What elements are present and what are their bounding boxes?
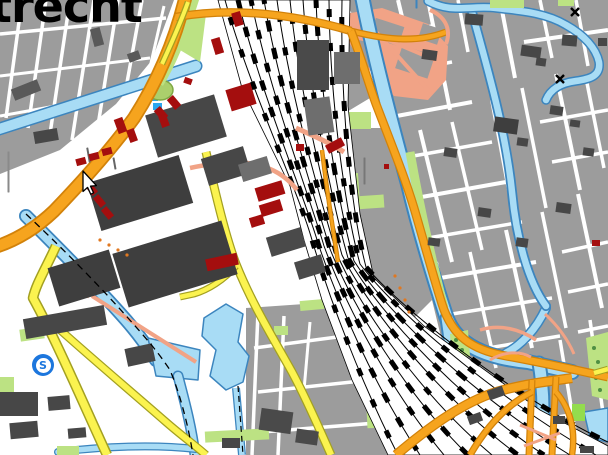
buildings-shape xyxy=(535,57,546,66)
buildings-shape xyxy=(582,147,594,156)
symbols-shape xyxy=(116,248,119,251)
parks-shape xyxy=(572,404,585,421)
map-label-city: trecht xyxy=(0,0,142,29)
buildings-shape xyxy=(334,52,360,84)
buildings-shape xyxy=(68,427,87,439)
buildings-shape xyxy=(421,49,437,61)
parks-shape xyxy=(596,360,600,364)
water-shape xyxy=(416,0,417,8)
buildings-shape xyxy=(598,38,607,46)
station-icon[interactable]: S xyxy=(32,354,54,376)
parks-shape xyxy=(592,346,596,350)
buildings-shape xyxy=(555,202,571,214)
buildings-shape xyxy=(222,438,240,448)
buildings-shape xyxy=(516,137,528,146)
buildings-shape xyxy=(304,96,335,135)
buildings-shape xyxy=(364,158,365,184)
symbols-shape xyxy=(403,298,406,301)
buildings-shape xyxy=(570,119,581,127)
symbols-shape xyxy=(393,274,396,277)
buildings-shape xyxy=(259,408,294,434)
buildings-shape xyxy=(8,152,9,192)
buildings-shape xyxy=(428,237,441,247)
buildings-shape xyxy=(443,147,457,158)
buildings-shape xyxy=(297,40,329,90)
map-canvas[interactable] xyxy=(0,0,608,455)
symbols-shape xyxy=(107,243,110,246)
buildings-shape xyxy=(384,164,389,169)
symbols-shape xyxy=(407,310,410,313)
buildings-shape xyxy=(0,392,38,416)
symbols-shape xyxy=(398,286,401,289)
buildings-shape xyxy=(580,446,594,453)
buildings-shape xyxy=(562,34,578,46)
parks-shape xyxy=(0,377,14,393)
parks-shape xyxy=(490,0,524,8)
buildings-shape xyxy=(549,105,563,116)
buildings-shape xyxy=(9,421,38,439)
buildings-shape xyxy=(515,237,528,248)
buildings-shape xyxy=(296,144,304,151)
buildings-shape xyxy=(47,395,70,411)
parks-shape xyxy=(558,0,574,6)
station-icon-letter: S xyxy=(39,360,47,371)
parks-shape xyxy=(598,388,602,392)
symbols-shape xyxy=(98,238,101,241)
buildings-shape xyxy=(465,13,484,26)
symbols-shape xyxy=(125,253,128,256)
buildings-shape xyxy=(553,416,565,424)
parks-shape xyxy=(300,299,325,311)
buildings-shape xyxy=(592,240,600,246)
buildings-shape xyxy=(477,207,491,218)
station-icon-ring: S xyxy=(36,358,51,373)
parks-shape xyxy=(57,446,79,455)
parks-shape xyxy=(274,326,288,335)
map-root: trecht S xyxy=(0,0,608,455)
